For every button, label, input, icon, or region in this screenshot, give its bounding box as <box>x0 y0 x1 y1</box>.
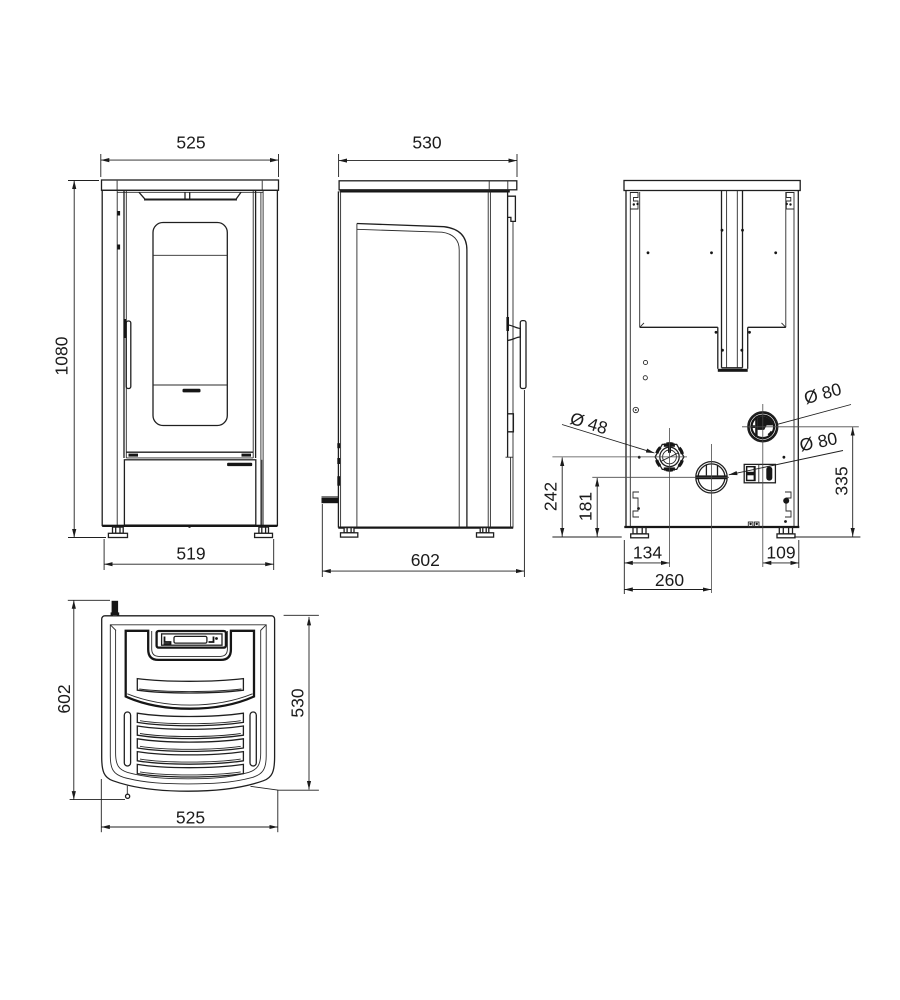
svg-text:530: 530 <box>287 688 307 717</box>
svg-text:602: 602 <box>54 684 74 713</box>
svg-text:1080: 1080 <box>51 336 71 375</box>
svg-text:525: 525 <box>176 132 205 152</box>
svg-text:109: 109 <box>766 542 795 562</box>
svg-text:335: 335 <box>831 466 851 495</box>
svg-text:525: 525 <box>176 807 205 827</box>
svg-text:242: 242 <box>540 482 560 511</box>
svg-text:181: 181 <box>575 492 595 521</box>
svg-text:519: 519 <box>176 543 205 563</box>
svg-text:260: 260 <box>655 570 684 590</box>
svg-text:530: 530 <box>412 132 441 152</box>
svg-text:134: 134 <box>633 542 662 562</box>
svg-text:602: 602 <box>411 550 440 570</box>
